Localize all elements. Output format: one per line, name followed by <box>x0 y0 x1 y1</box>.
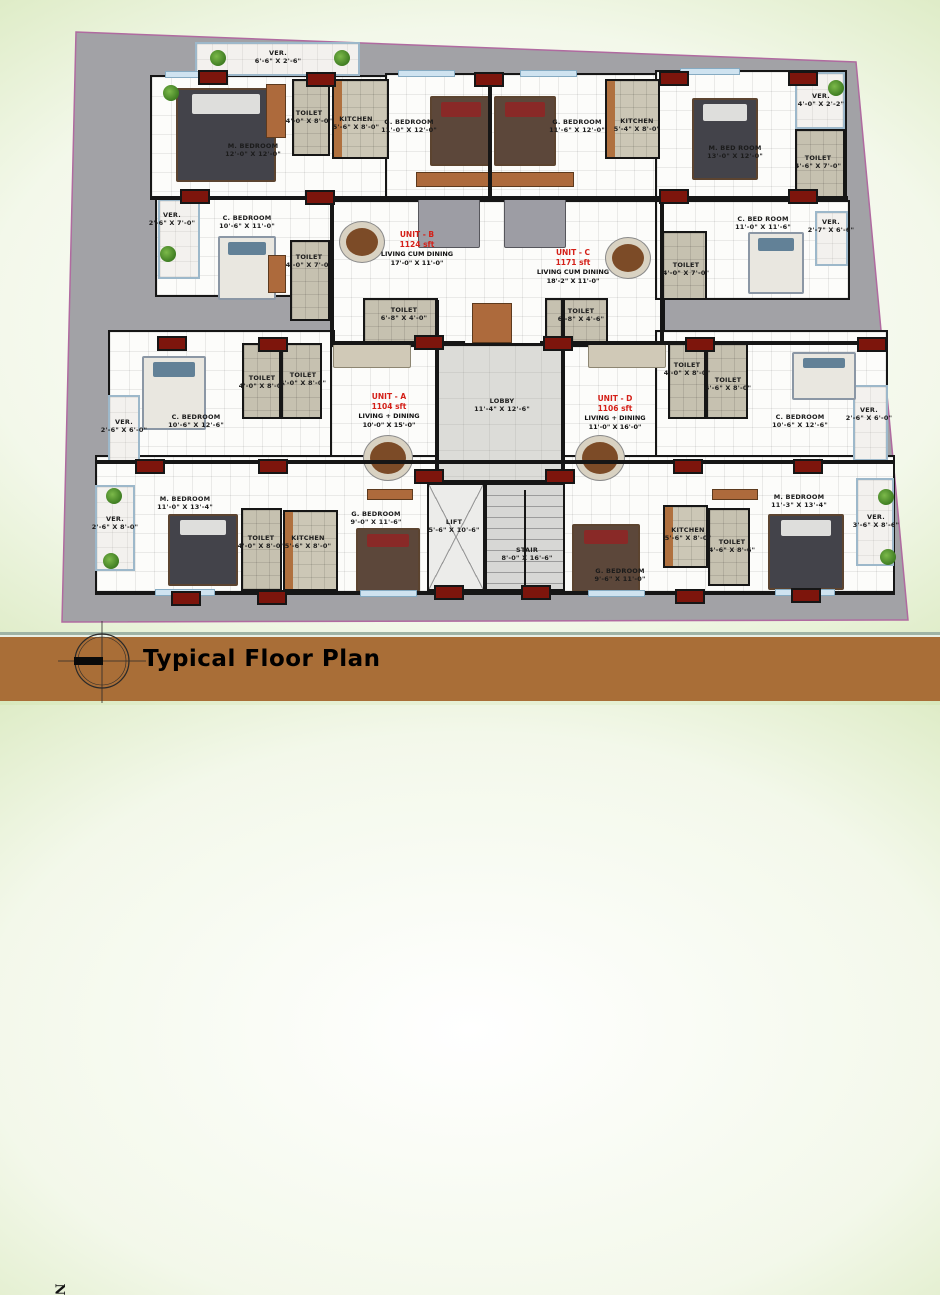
column <box>414 335 444 350</box>
room-label: LIFT5'-6" X 10'-6" <box>428 518 479 534</box>
sofa <box>504 196 566 248</box>
column <box>258 337 288 352</box>
wood <box>472 303 512 343</box>
bed <box>494 96 556 166</box>
column <box>171 591 201 606</box>
wall <box>488 75 492 200</box>
wood <box>712 489 758 500</box>
column <box>257 590 287 605</box>
window <box>398 70 455 77</box>
room-label: TOILET4'-0" X 8'-0" <box>286 109 332 125</box>
column <box>659 189 689 204</box>
column <box>135 459 165 474</box>
wall <box>435 300 439 484</box>
window <box>520 70 577 77</box>
wood <box>266 84 286 138</box>
plan-title: Typical Floor Plan <box>143 646 381 672</box>
room-label: TOILET4'-6" X 8'-6" <box>709 538 755 554</box>
bed <box>176 88 276 182</box>
room-label: G. BEDROOM9'-6" X 11'-0" <box>594 567 645 583</box>
window <box>680 68 740 75</box>
plant-icon <box>106 488 122 504</box>
column <box>157 336 187 351</box>
room-label: M. BEDROOM11'-3" X 13'-4" <box>771 493 827 509</box>
column <box>793 459 823 474</box>
room-label: VER.6'-6" X 2'-6" <box>255 49 301 65</box>
room-label: KITCHEN5'-6" X 8'-0" <box>285 534 331 550</box>
room-label: LOBBY11'-4" X 12'-6" <box>474 397 530 413</box>
room-label: C. BED ROOM11'-0" X 11'-6" <box>735 215 791 231</box>
floor-plan-canvas: VER.6'-6" X 2'-6"M. BEDROOM12'-0" X 12'-… <box>0 0 940 705</box>
room-label: VER.2'-6" X 8'-0" <box>92 515 138 531</box>
room-label: TOILET4'-6" X 8'-0" <box>705 376 751 392</box>
room-label: TOILET4'-0" X 7'-0" <box>663 261 709 277</box>
room-label: KITCHEN5'-4" X 8'-0" <box>614 117 660 133</box>
column <box>180 189 210 204</box>
room-label: TOILET6'-8" X 4'-0" <box>381 306 427 322</box>
zone-toilet <box>668 343 706 419</box>
plant-icon <box>334 50 350 66</box>
column <box>306 72 336 87</box>
room-label: M. BED ROOM13'-0" X 12'-0" <box>707 144 763 160</box>
plant-icon <box>163 85 179 101</box>
room-label: KITCHEN5'-6" X 8'-0" <box>665 526 711 542</box>
wall <box>95 460 895 464</box>
column <box>673 459 703 474</box>
room-label: TOILET4'-0" X 7'-0" <box>286 253 332 269</box>
wall <box>524 490 526 585</box>
room-label: M. BEDROOM12'-0" X 12'-0" <box>225 142 281 158</box>
column <box>414 469 444 484</box>
title-bar: N Typical Floor Plan <box>0 632 940 701</box>
column <box>788 71 818 86</box>
zone-kitchen <box>283 510 338 591</box>
room-label: STAIR8'-0" X 16'-6" <box>501 546 552 562</box>
column <box>791 588 821 603</box>
wall <box>150 196 848 200</box>
room-label: VER.2'-7" X 6'-6" <box>808 218 854 234</box>
bed <box>356 528 420 592</box>
unit-label: UNIT - C1171 sftLIVING CUM DINING18'-2" … <box>537 248 609 286</box>
floor-plan: VER.6'-6" X 2'-6"M. BEDROOM12'-0" X 12'-… <box>0 0 940 705</box>
unit-label: UNIT - A1104 sftLIVING + DINING10'-0" X … <box>358 392 419 430</box>
room-label: G. BEDROOM11'-6" X 12'-0" <box>549 118 605 134</box>
plant-icon <box>210 50 226 66</box>
zone-ver <box>853 385 888 461</box>
room-label: VER.4'-0" X 2'-2" <box>798 92 844 108</box>
bed <box>692 98 758 180</box>
wall <box>561 300 565 484</box>
plant-icon <box>160 246 176 262</box>
room-label: TOILET4'-0" X 8'-0" <box>238 534 284 550</box>
column <box>545 469 575 484</box>
dining <box>576 436 624 480</box>
plant-icon <box>880 549 896 565</box>
column <box>543 336 573 351</box>
plant-icon <box>103 553 119 569</box>
room-label: TOILET6'-8" X 4'-6" <box>558 307 604 323</box>
room-label: KITCHEN5'-6" X 8'-0" <box>333 115 379 131</box>
wall <box>330 341 465 345</box>
unit-label: UNIT - B1124 sftLIVING CUM DINING17'-0" … <box>381 230 453 268</box>
column <box>434 585 464 600</box>
room-label: M. BEDROOM11'-0" X 13'-4" <box>157 495 213 511</box>
room-label: TOILET4'-0" X 8'-0" <box>280 371 326 387</box>
bed <box>748 232 804 294</box>
room-label: TOILET4'-6" X 7'-0" <box>795 154 841 170</box>
wall <box>483 483 487 591</box>
column <box>857 337 887 352</box>
room-label: TOILET4'-0" X 8'-0" <box>239 374 285 390</box>
sofa <box>588 344 666 368</box>
room-label: G. BEDROOM11'-0" X 12'-0" <box>381 118 437 134</box>
room-label: G. BEDROOM9'-0" X 11'-6" <box>350 510 401 526</box>
room-label: VER.2'-6" X 7'-0" <box>149 211 195 227</box>
bed <box>430 96 492 166</box>
column <box>788 189 818 204</box>
room-label: VER.2'-6" X 6'-0" <box>101 418 147 434</box>
dining <box>340 222 384 262</box>
dining <box>364 436 412 480</box>
room-label: VER.3'-6" X 8'-6" <box>853 513 899 529</box>
column <box>198 70 228 85</box>
column <box>305 190 335 205</box>
north-label: N <box>51 1284 66 1295</box>
bed <box>792 352 856 400</box>
unit-label: UNIT - D1106 sftLIVING + DINING11'-0" X … <box>584 394 645 432</box>
column <box>474 72 504 87</box>
wall <box>330 200 334 345</box>
column <box>521 585 551 600</box>
room-label: VER.2'-6" X 6'-0" <box>846 406 892 422</box>
wood <box>268 255 286 293</box>
column <box>675 589 705 604</box>
window <box>360 590 417 597</box>
room-label: C. BEDROOM10'-6" X 12'-6" <box>168 413 224 429</box>
sofa <box>333 344 411 368</box>
wood <box>416 172 574 187</box>
zone-lift <box>427 483 485 591</box>
column <box>258 459 288 474</box>
bed <box>768 514 844 590</box>
column <box>685 337 715 352</box>
room-label: C. BEDROOM10'-6" X 11'-0" <box>219 214 275 230</box>
plant-icon <box>878 489 894 505</box>
room-label: TOILET4'-0" X 8'-0" <box>664 361 710 377</box>
bed <box>168 514 238 586</box>
window <box>588 590 645 597</box>
room-label: C. BEDROOM10'-6" X 12'-6" <box>772 413 828 429</box>
column <box>659 71 689 86</box>
dining <box>606 238 650 278</box>
wood <box>367 489 413 500</box>
